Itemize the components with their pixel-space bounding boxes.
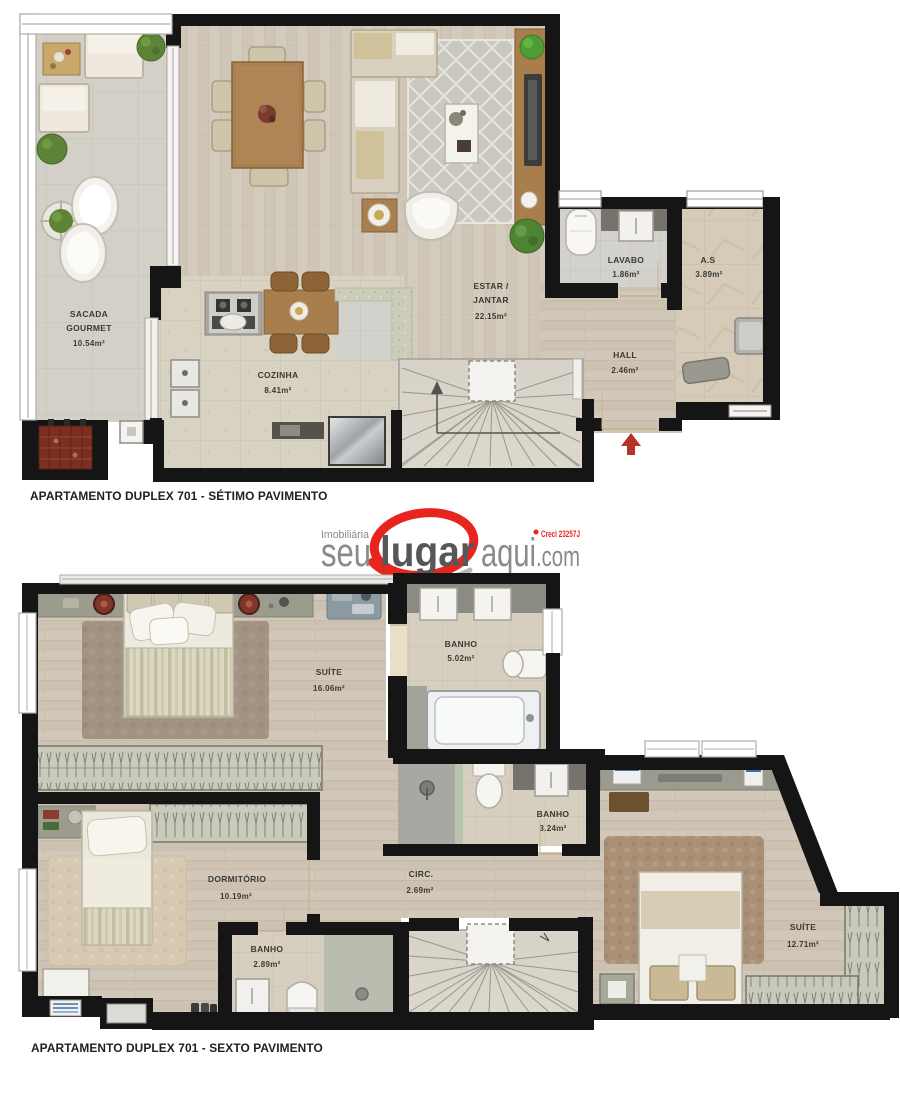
svg-text:BANHO: BANHO — [251, 944, 284, 954]
svg-text:SUÍTE: SUÍTE — [790, 922, 817, 932]
svg-text:BANHO: BANHO — [537, 809, 570, 819]
svg-text:APARTAMENTO DUPLEX 701 - SEXTO: APARTAMENTO DUPLEX 701 - SEXTO PAVIMENTO — [31, 1041, 323, 1055]
svg-text:3.24m²: 3.24m² — [539, 824, 566, 833]
svg-text:A.S: A.S — [700, 255, 715, 265]
svg-text:10.19m²: 10.19m² — [220, 892, 252, 901]
svg-text:DORMITÓRIO: DORMITÓRIO — [208, 873, 266, 884]
svg-text:.com: .com — [536, 541, 580, 573]
svg-text:10.54m²: 10.54m² — [73, 339, 105, 348]
svg-text:APARTAMENTO DUPLEX 701 - SÉTIM: APARTAMENTO DUPLEX 701 - SÉTIMO PAVIMENT… — [30, 488, 327, 503]
svg-text:COZINHA: COZINHA — [258, 370, 299, 380]
svg-text:2.69m²: 2.69m² — [406, 886, 433, 895]
svg-text:seu: seu — [321, 531, 371, 575]
svg-text:8.41m²: 8.41m² — [264, 386, 291, 395]
svg-text:16.06m²: 16.06m² — [313, 684, 345, 693]
svg-text:LAVABO: LAVABO — [608, 255, 645, 265]
svg-text:lugar: lugar — [380, 528, 475, 576]
svg-text:1.86m²: 1.86m² — [612, 270, 639, 279]
svg-text:aqui: aqui — [481, 531, 536, 575]
svg-text:Creci 23257J: Creci 23257J — [541, 529, 580, 540]
svg-text:22.15m²: 22.15m² — [475, 312, 507, 321]
svg-text:JANTAR: JANTAR — [473, 295, 509, 305]
svg-text:5.02m²: 5.02m² — [447, 654, 474, 663]
svg-text:BANHO: BANHO — [445, 639, 478, 649]
svg-text:SACADA: SACADA — [70, 309, 108, 319]
svg-text:3.89m²: 3.89m² — [695, 270, 722, 279]
svg-text:ESTAR /: ESTAR / — [473, 281, 508, 291]
svg-text:12.71m²: 12.71m² — [787, 940, 819, 949]
svg-text:CIRC.: CIRC. — [409, 869, 434, 879]
svg-text:2.89m²: 2.89m² — [253, 960, 280, 969]
svg-text:GOURMET: GOURMET — [66, 323, 112, 333]
svg-text:SUÍTE: SUÍTE — [316, 667, 343, 677]
svg-text:2.46m²: 2.46m² — [611, 366, 638, 375]
svg-text:HALL: HALL — [613, 350, 637, 360]
